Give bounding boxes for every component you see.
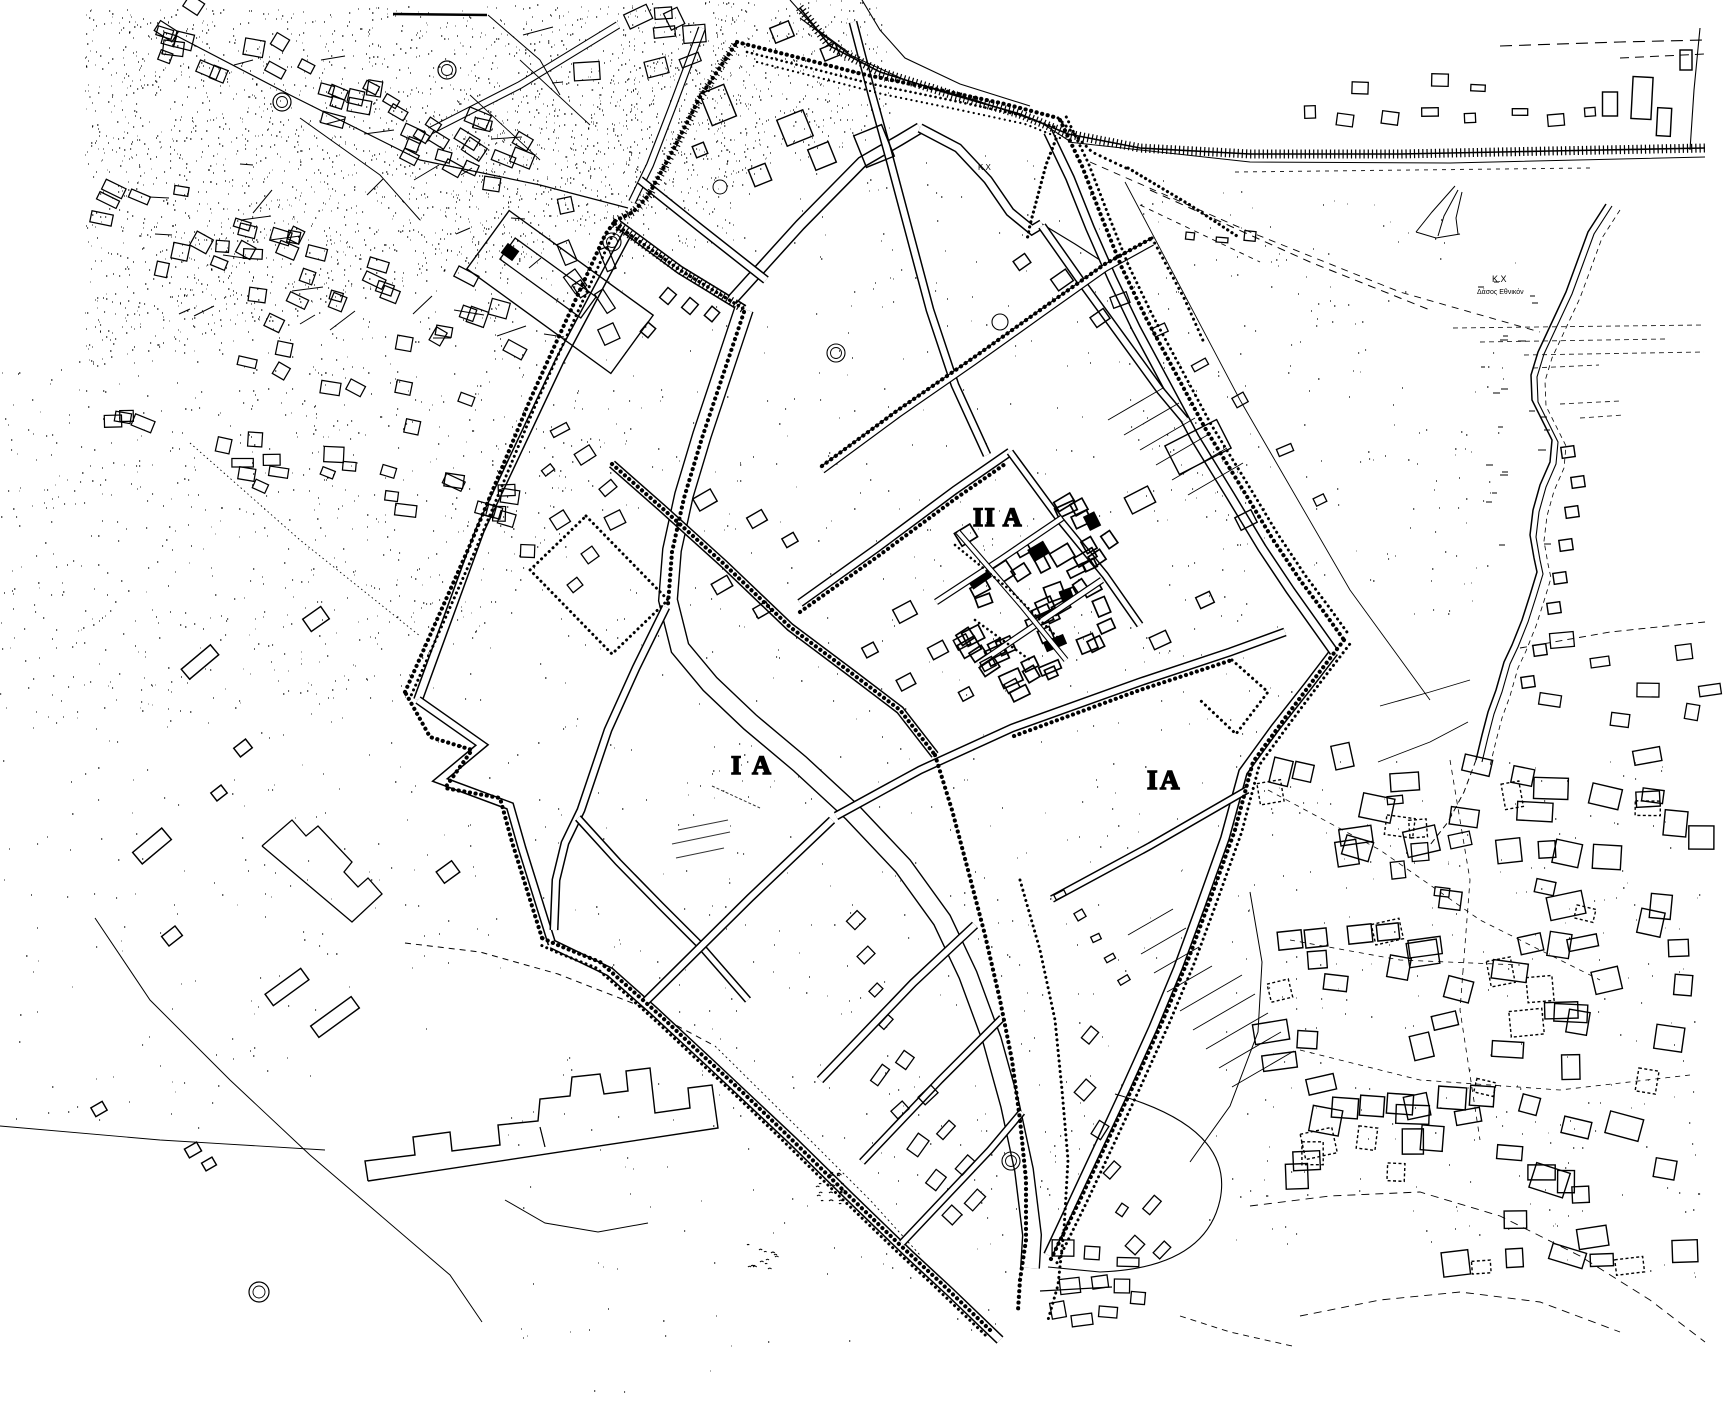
svg-text:IA: IA xyxy=(1147,765,1182,795)
svg-text:Κ.Χ: Κ.Χ xyxy=(978,163,992,172)
svg-text:I A: I A xyxy=(731,751,774,780)
svg-text:II A: II A xyxy=(973,503,1023,532)
svg-text:Κ.Χ: Κ.Χ xyxy=(1492,274,1507,284)
svg-text:Δάσος Εθνικόν: Δάσος Εθνικόν xyxy=(1477,288,1524,296)
